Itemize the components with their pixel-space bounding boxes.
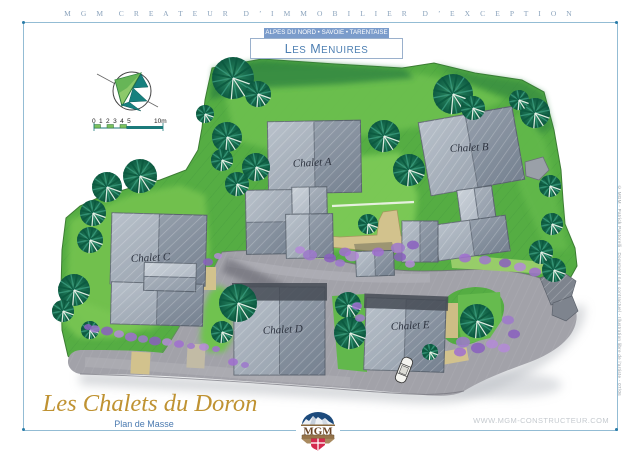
svg-text:Chalet E: Chalet E [391,319,431,333]
svg-text:Chalet D: Chalet D [263,323,304,337]
svg-text:Chalet B: Chalet B [450,141,490,155]
svg-text:10m: 10m [154,118,167,125]
svg-text:Chalet A: Chalet A [293,156,332,170]
svg-text:0 1 2 3 4 5: 0 1 2 3 4 5 [92,118,132,125]
